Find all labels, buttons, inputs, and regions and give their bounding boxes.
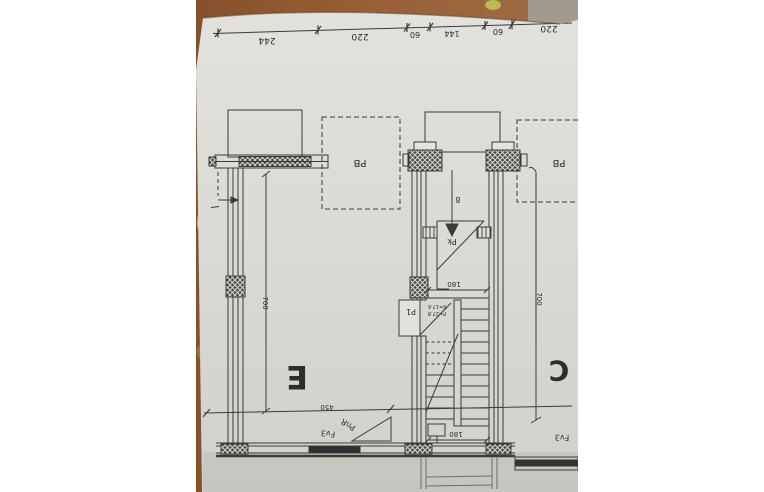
dim-label-180-top: 180 (447, 280, 460, 288)
wall-hatch-2 (405, 444, 432, 454)
screenshot-root: { "scene": { "description": "photo-of-fl… (0, 0, 764, 492)
table-yellow-blob (485, 0, 501, 10)
label-fv3-left: Fv3 (320, 428, 335, 438)
wall-column-hatch (410, 277, 428, 298)
dim-label-700-right: 700 (535, 292, 543, 305)
cap-hatch (408, 150, 442, 171)
dim-label-220b: 220 (540, 23, 557, 33)
door-frame-left (423, 227, 437, 238)
dim-label-60b: 60 (493, 27, 503, 36)
dim-label-220a: 220 (351, 31, 368, 41)
dim-label-700-left: 700 (261, 296, 269, 309)
dim-label-144: 144 (444, 29, 459, 38)
cap-top (414, 142, 436, 150)
door-leaf (399, 300, 420, 336)
wall-hatch-3 (486, 444, 511, 454)
cap-hatch (486, 150, 520, 171)
door-label-pk: Pk (447, 237, 457, 246)
letterbox-left (0, 0, 196, 492)
paper-bottom-shadow (203, 452, 578, 492)
wall-dark-band (309, 446, 360, 453)
dim-label-450: 450 (320, 403, 333, 411)
dim-label-60a: 60 (410, 30, 420, 39)
wall-right-dark-band (515, 460, 578, 466)
stair-note-line1: 6=17.6 (428, 303, 447, 309)
dim-label-244: 244 (258, 35, 275, 45)
letterbox-right (578, 0, 764, 492)
door-label-p1: P1 (406, 307, 416, 316)
wall-column-hatch (226, 276, 245, 297)
beam-end-tab (209, 157, 216, 166)
room-label-e: E (286, 358, 308, 396)
label-fv3-right: Fv3 (555, 433, 570, 442)
stair-note-line2: P=27.8 (428, 310, 446, 316)
room-label-c: C (549, 354, 570, 387)
arrow-label: 8 (455, 195, 460, 204)
door-frame-right (477, 227, 491, 238)
wall-hatch-1 (221, 444, 248, 454)
cap-top (492, 142, 514, 150)
room-label-pb-right: PB (552, 157, 565, 168)
floorplan-photo: 244 220 60 144 60 220 PB PB E C P1 Pk 8 … (0, 0, 764, 492)
room-label-pb-left: PB (353, 157, 366, 168)
dim-label-180-bottom: 180 (449, 430, 462, 438)
